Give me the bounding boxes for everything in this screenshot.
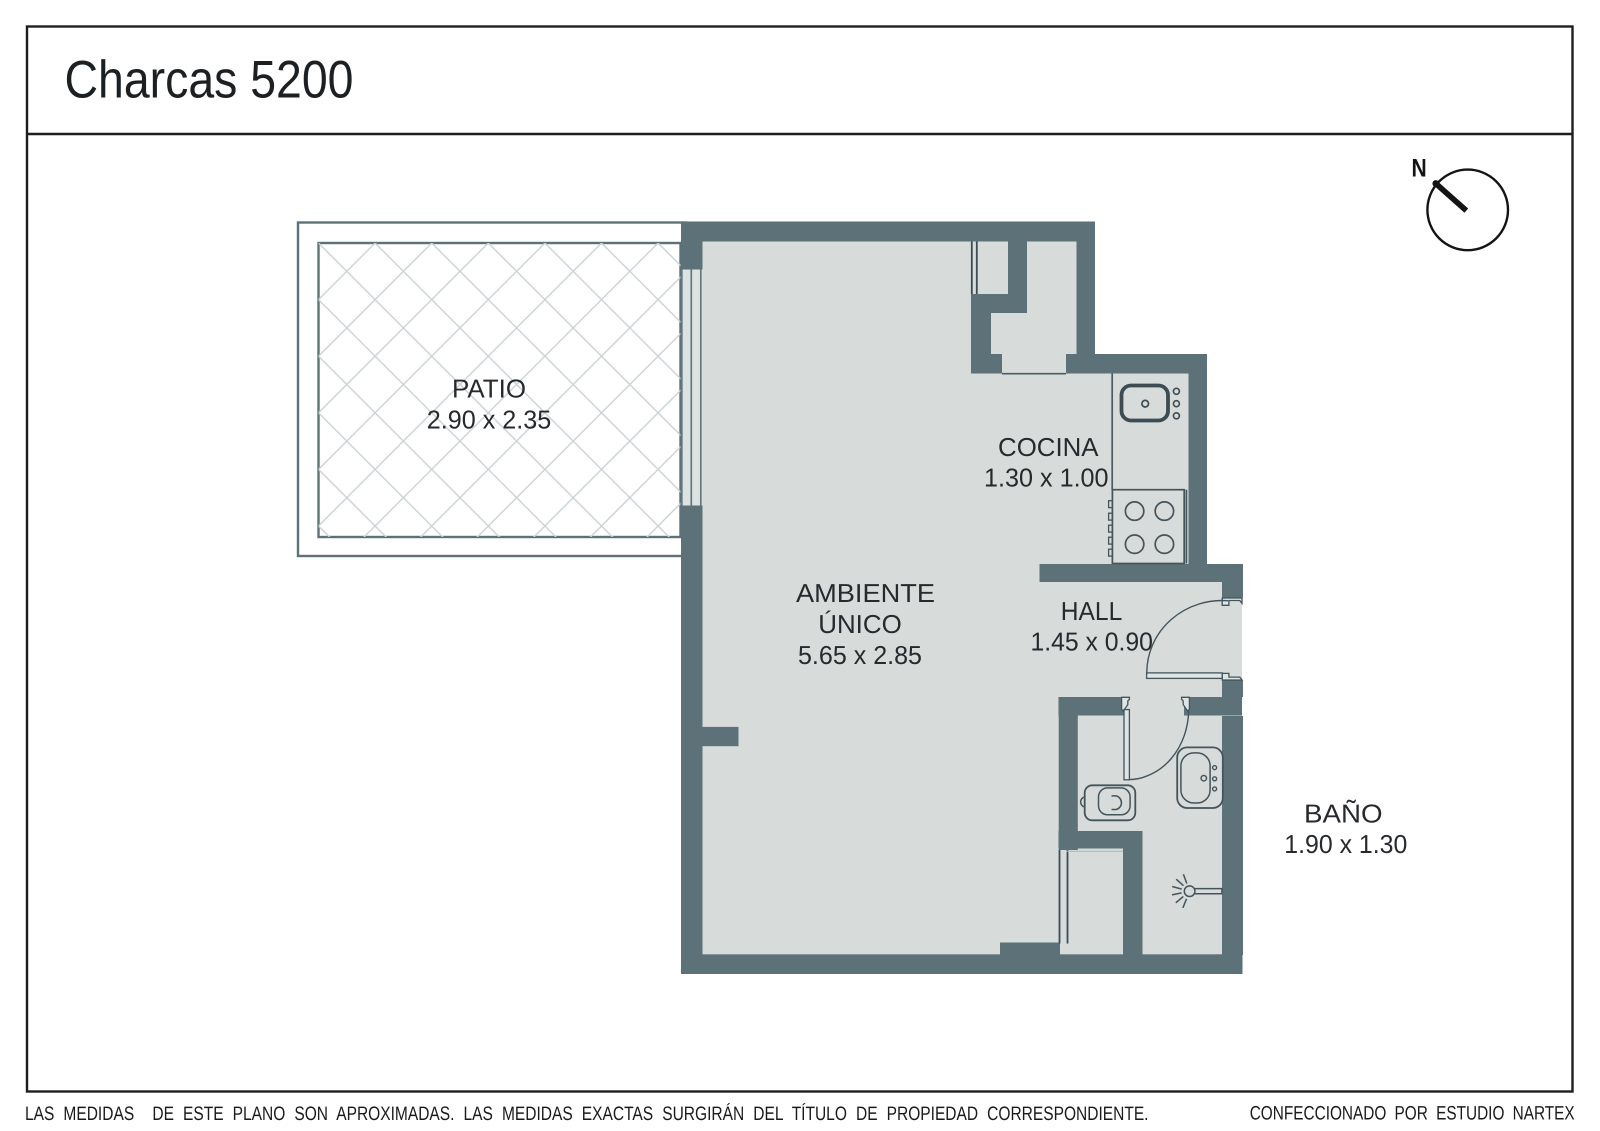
svg-text:COCINA: COCINA — [998, 432, 1099, 462]
svg-text:1.90 x 1.30: 1.90 x 1.30 — [1284, 829, 1407, 859]
svg-text:N: N — [1412, 155, 1427, 183]
svg-text:HALL: HALL — [1061, 596, 1123, 626]
svg-text:1.45 x 0.90: 1.45 x 0.90 — [1030, 627, 1153, 657]
svg-text:LAS MEDIDAS DE ESTE PLANO SON: LAS MEDIDAS DE ESTE PLANO SON APROXIMADA… — [25, 1103, 1149, 1125]
svg-text:1.30 x 1.00: 1.30 x 1.00 — [984, 463, 1109, 493]
svg-text:ÚNICO: ÚNICO — [818, 609, 902, 639]
svg-text:PATIO: PATIO — [452, 374, 526, 404]
svg-text:2.90 x 2.35: 2.90 x 2.35 — [427, 405, 552, 435]
svg-text:CONFECCIONADO POR ESTUDIO NART: CONFECCIONADO POR ESTUDIO NARTEX — [1250, 1103, 1575, 1125]
svg-text:BAÑO: BAÑO — [1304, 799, 1383, 829]
svg-text:5.65 x 2.85: 5.65 x 2.85 — [798, 640, 922, 670]
svg-text:AMBIENTE: AMBIENTE — [796, 578, 935, 608]
svg-text:Charcas 5200: Charcas 5200 — [65, 51, 354, 110]
